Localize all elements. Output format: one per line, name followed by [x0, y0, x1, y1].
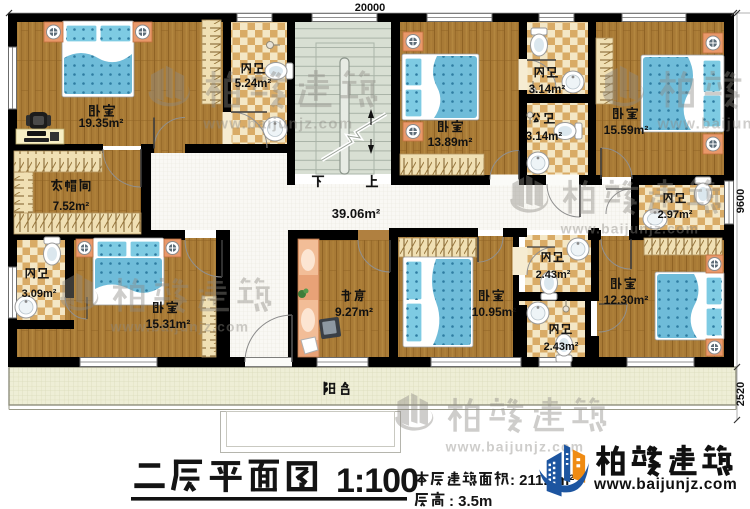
- svg-text:13.89m²: 13.89m²: [428, 135, 473, 149]
- svg-text:39.06m²: 39.06m²: [332, 206, 381, 221]
- svg-text:2.97m²: 2.97m²: [658, 209, 693, 221]
- svg-text:5.24m²: 5.24m²: [235, 78, 272, 90]
- svg-text:2.43m²: 2.43m²: [544, 341, 579, 353]
- svg-text:: 3.5m: : 3.5m: [449, 493, 492, 509]
- svg-text:20000: 20000: [355, 2, 386, 14]
- svg-text:1:100: 1:100: [336, 462, 418, 500]
- svg-text:3.14m²: 3.14m²: [529, 84, 566, 96]
- svg-text:12.30m²: 12.30m²: [604, 293, 649, 307]
- svg-text:2520: 2520: [735, 382, 747, 406]
- svg-text:9600: 9600: [735, 189, 747, 213]
- svg-text:15.31m²: 15.31m²: [146, 317, 191, 331]
- svg-text:19.35m²: 19.35m²: [79, 116, 124, 130]
- svg-text:3.09m²: 3.09m²: [22, 288, 57, 300]
- svg-text:www.baijunjz.com: www.baijunjz.com: [593, 476, 737, 493]
- svg-text:7.52m²: 7.52m²: [53, 201, 90, 213]
- svg-text:2.43m²: 2.43m²: [536, 269, 571, 281]
- svg-text:10.95m²: 10.95m²: [472, 305, 517, 319]
- svg-text:15.59m²: 15.59m²: [604, 123, 649, 137]
- svg-text:3.14m²: 3.14m²: [526, 131, 563, 143]
- svg-text:9.27m²: 9.27m²: [335, 305, 373, 319]
